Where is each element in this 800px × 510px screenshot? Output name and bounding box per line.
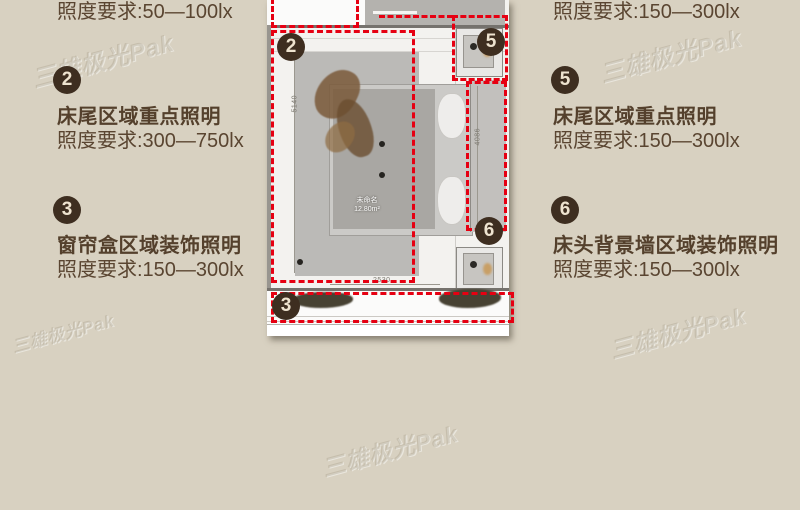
brand-watermark: 三雄极光Pak xyxy=(9,306,117,357)
brand-watermark: 三雄极光Pak xyxy=(27,23,177,95)
floorplan: 5140 4086 2530 未命名 12.80m² 2 5 6 3 xyxy=(267,0,509,336)
item4-requirement: 照度要求:150—300lx xyxy=(553,0,740,24)
item6-requirement: 照度要求:150—300lx xyxy=(553,253,740,282)
brand-watermark: 三雄极光Pak xyxy=(318,414,462,483)
item5-number-badge: 5 xyxy=(551,66,579,94)
item1-requirement: 照度要求:50—100lx xyxy=(57,0,233,24)
plan-badge-2: 2 xyxy=(277,33,305,61)
pillow xyxy=(437,176,466,225)
dimension-line xyxy=(330,284,440,285)
brand-watermark: 三雄极光Pak xyxy=(606,296,750,365)
plan-badge-3: 3 xyxy=(272,292,300,320)
wardrobe-door-line xyxy=(373,11,417,14)
item3-requirement: 照度要求:150—300lx xyxy=(57,253,244,282)
window-frame-line xyxy=(267,324,509,325)
lighting-zone-box-4-edge xyxy=(379,15,453,18)
table-lamp-icon xyxy=(470,261,477,268)
item5-requirement: 照度要求:150—300lx xyxy=(553,124,740,153)
item3-number-badge: 3 xyxy=(53,196,81,224)
item6-number-badge: 6 xyxy=(551,196,579,224)
brand-watermark: 三雄极光Pak xyxy=(595,18,745,90)
lighting-guide-page: { "colors":{"background":"#d8d1c1","acce… xyxy=(0,0,800,510)
plan-badge-5: 5 xyxy=(477,28,505,56)
pillow xyxy=(437,93,466,139)
lighting-zone-box-top xyxy=(271,0,359,28)
lighting-zone-box-3 xyxy=(271,292,514,323)
lamp-glow xyxy=(483,263,492,275)
item2-number-badge: 2 xyxy=(53,66,81,94)
item2-requirement: 照度要求:300—750lx xyxy=(57,124,244,153)
lighting-zone-box-6 xyxy=(466,81,507,231)
lighting-zone-box-2 xyxy=(271,30,415,283)
plan-badge-6: 6 xyxy=(475,217,503,245)
